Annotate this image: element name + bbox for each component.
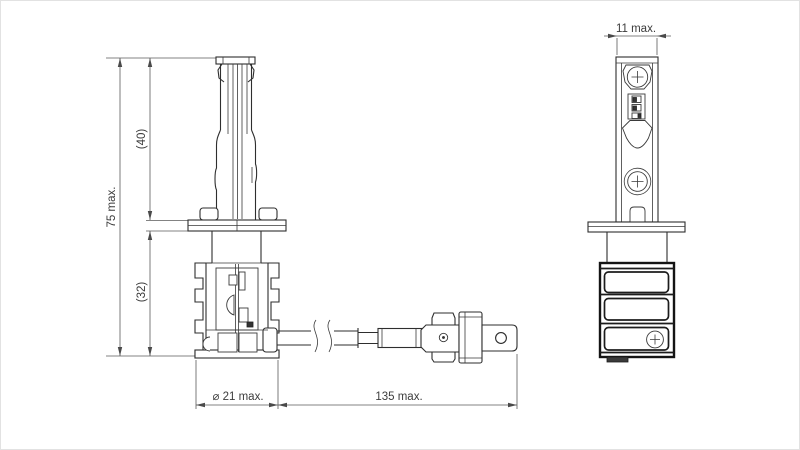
strain-relief-sleeve (378, 329, 422, 348)
flange-side (588, 222, 685, 232)
dimension-height-total: 75 max. (106, 58, 122, 356)
technical-drawing-canvas: 75 max. (40) (32) (0, 0, 800, 450)
connector-body (459, 312, 482, 363)
flange-front (188, 208, 286, 231)
dim-label-32: (32) (136, 282, 148, 303)
bulb-column-side (616, 57, 658, 222)
cable-break-symbol (314, 320, 332, 352)
cable-gland (263, 328, 277, 352)
side-view: 11 max. (588, 23, 685, 362)
dim-label-135-max: 135 max. (375, 391, 422, 403)
fin-slot-2 (605, 299, 669, 321)
phillips-screw-upper-icon (623, 65, 652, 89)
heatsink-side (600, 263, 674, 362)
terminal-hole (496, 333, 507, 344)
fin-slot-1 (605, 272, 669, 293)
phillips-screw-lower-icon (624, 168, 651, 195)
dim-label-diameter: ⌀ 21 max. (212, 391, 263, 403)
dimension-diameter: ⌀ 21 max. (196, 391, 278, 407)
flange-bump-right (259, 208, 277, 220)
cable-ferrule (358, 333, 378, 344)
dim-label-75-max: 75 max. (106, 187, 118, 228)
connector-clip (421, 313, 459, 362)
dimension-overall-length: 135 max. (278, 391, 517, 407)
led-chips-window (628, 94, 645, 119)
neck-side (607, 232, 667, 263)
front-view: 75 max. (40) (32) (106, 57, 517, 409)
dim-label-11-max: 11 max. (616, 23, 656, 35)
dimension-width: 11 max. (604, 23, 671, 55)
heatsink-front (195, 263, 279, 358)
spade-terminal (482, 325, 517, 351)
drawing-svg: 75 max. (40) (32) (0, 0, 800, 450)
phillips-screw-heatsink-icon (647, 331, 664, 348)
cable-and-connector (277, 312, 517, 363)
dim-label-40: (40) (136, 129, 148, 150)
neck-front (212, 231, 261, 263)
bulb-column-front (215, 57, 257, 220)
dimension-tip-to-flange: (40) (136, 58, 152, 220)
heatsink-foot (607, 357, 628, 362)
dimension-flange-to-base: (32) (136, 231, 152, 356)
column-tab (630, 207, 645, 222)
flange-bump-left (200, 208, 218, 220)
